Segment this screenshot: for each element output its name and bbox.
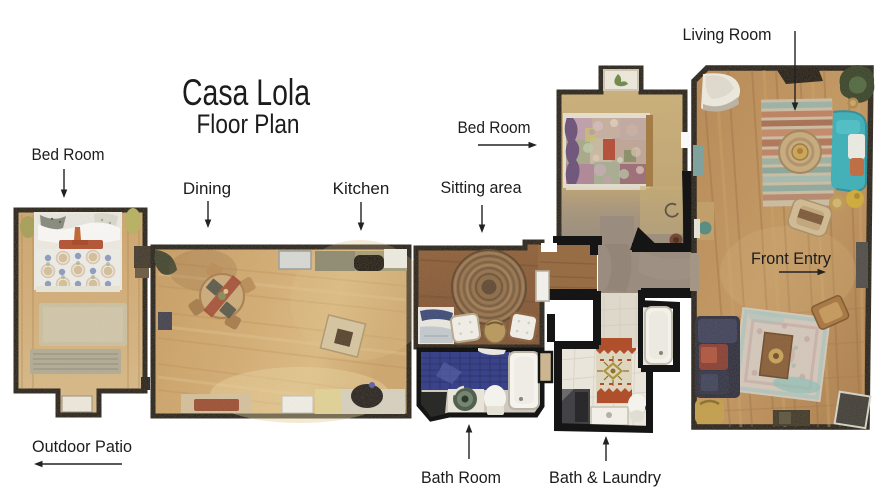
svg-text:Casa Lola: Casa Lola bbox=[182, 72, 310, 113]
svg-text:Bath & Laundry: Bath & Laundry bbox=[549, 468, 661, 487]
svg-text:Kitchen: Kitchen bbox=[333, 179, 390, 198]
svg-text:Dining: Dining bbox=[183, 179, 231, 198]
svg-text:Bath Room: Bath Room bbox=[421, 468, 501, 487]
svg-text:Front Entry: Front Entry bbox=[751, 249, 831, 268]
svg-text:Sitting area: Sitting area bbox=[441, 178, 523, 197]
svg-text:Bed Room: Bed Room bbox=[458, 118, 531, 137]
svg-text:Bed Room: Bed Room bbox=[32, 145, 105, 164]
svg-text:Outdoor Patio: Outdoor Patio bbox=[32, 437, 132, 456]
svg-text:Living Room: Living Room bbox=[683, 25, 772, 44]
svg-text:Floor Plan: Floor Plan bbox=[197, 109, 300, 139]
